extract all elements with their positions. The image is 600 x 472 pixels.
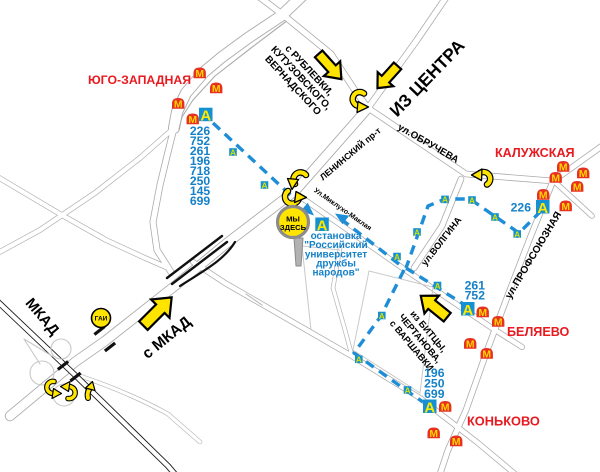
svg-text:ГАИ: ГАИ [95,316,108,323]
svg-text:КОНЬКОВО: КОНЬКОВО [467,414,540,429]
svg-text:699: 699 [190,194,211,208]
svg-text:БЕЛЯЕВО: БЕЛЯЕВО [507,325,570,339]
svg-text:226: 226 [511,201,532,215]
svg-text:КАЛУЖСКАЯ: КАЛУЖСКАЯ [495,146,575,160]
svg-text:752: 752 [465,289,486,303]
svg-text:народов": народов" [312,268,359,279]
svg-text:699: 699 [424,387,445,401]
svg-text:ЮГО-ЗАПАДНАЯ: ЮГО-ЗАПАДНАЯ [88,73,191,87]
svg-text:ЗДЕСЬ: ЗДЕСЬ [280,223,307,232]
